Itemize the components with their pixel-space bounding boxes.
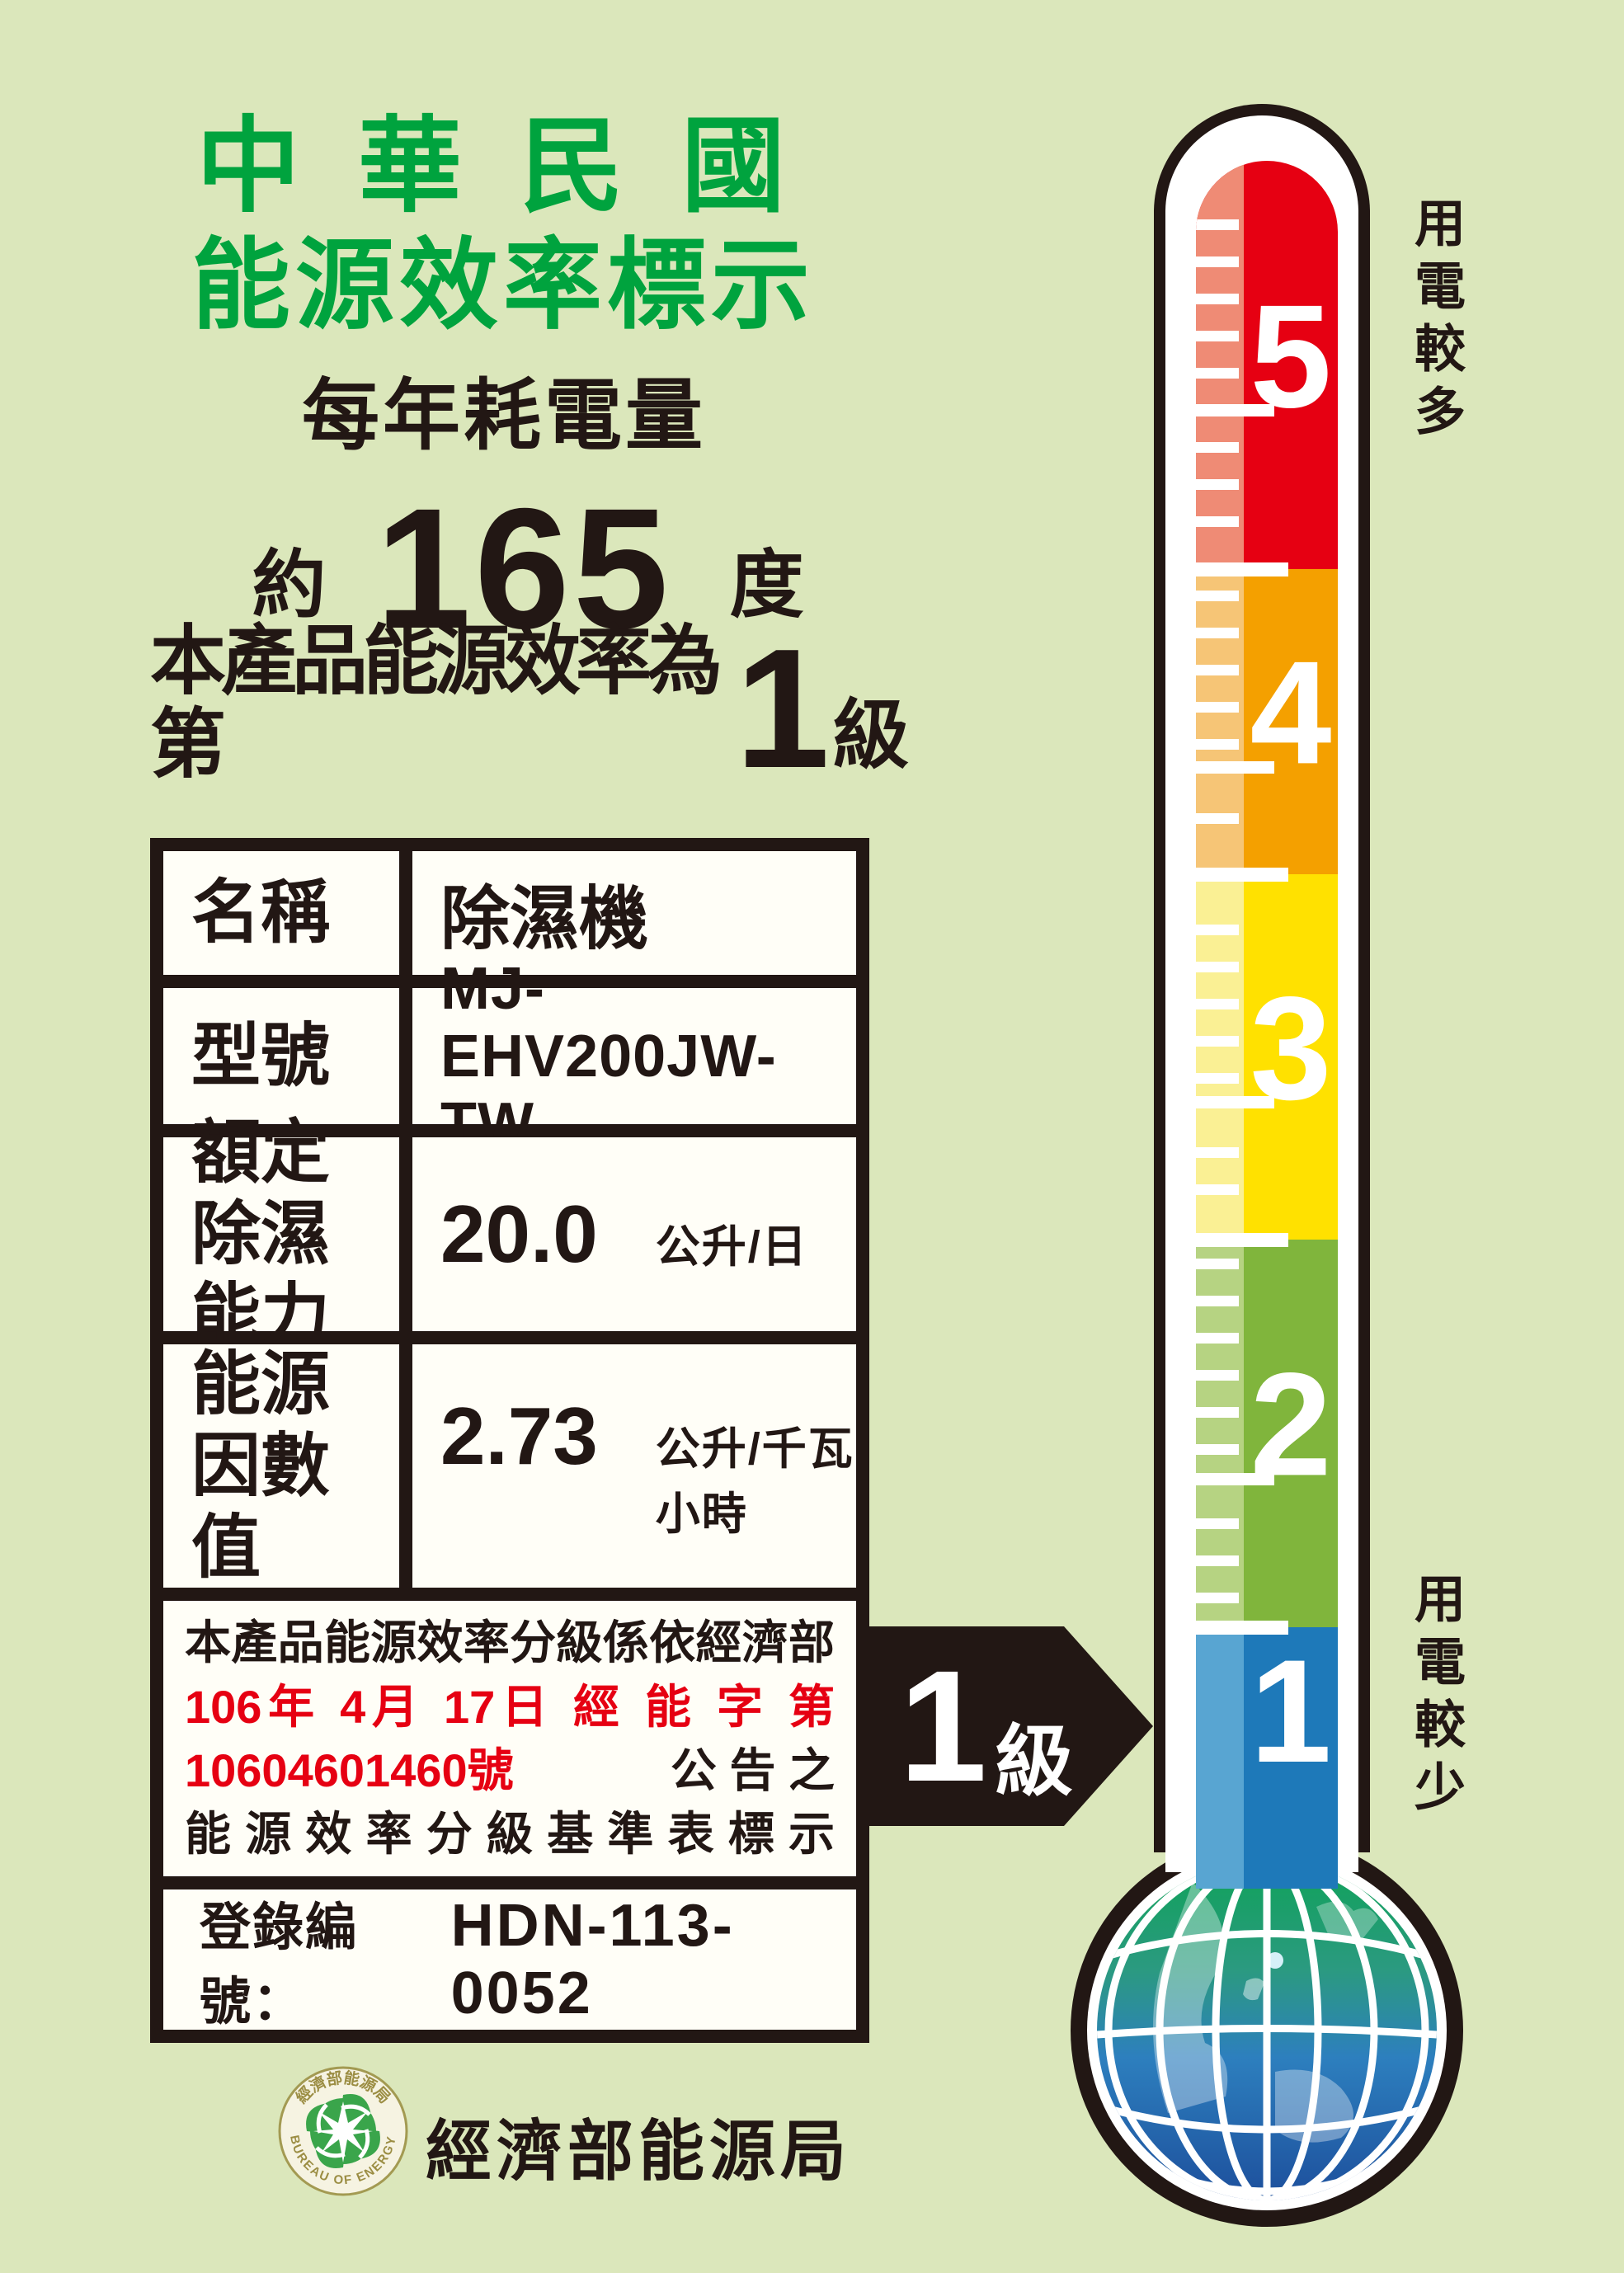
scale-tick (1196, 1473, 1274, 1485)
scale-tick (1196, 1233, 1288, 1247)
name-label-cell: 名稱 (163, 851, 399, 975)
notice-cell: 本產品能源效率分級係依經濟部 106年 4月 17日 經 能 字 第 10604… (163, 1601, 856, 1876)
scale-tick (1196, 999, 1239, 1009)
notice-line4: 能源效率分級基準表標示 (185, 1802, 835, 1866)
scale-tick (1196, 665, 1239, 675)
grade-sentence-prefix: 本產品能源效率為第 (150, 620, 732, 787)
grade-sentence: 本產品能源效率為第 1 級 (150, 620, 909, 787)
bureau-badge: 經濟部能源局 BUREAU OF ENERGY (277, 2065, 409, 2197)
grade-arrow-value: 1 (899, 1647, 987, 1805)
factor-label-line1: 能源 (191, 1344, 371, 1425)
model-value: MJ-EHV200JW-TW (440, 955, 856, 1158)
scale-tick (1196, 925, 1239, 935)
scale-tick (1196, 442, 1239, 453)
capacity-value: 20.0 (440, 1188, 598, 1281)
scale-label-less: 用電較少 (1397, 1572, 1471, 1823)
scale-tick (1196, 1370, 1239, 1381)
scale-tick (1196, 1184, 1239, 1195)
scale-tick (1196, 1518, 1239, 1529)
registration-number: HDN-113-0052 (451, 1892, 856, 2027)
factor-value-cell: 2.73 公升/千瓦小時 (412, 1344, 856, 1588)
scale-tick (1196, 1096, 1274, 1108)
factor-label-cell: 能源 因數值 (163, 1344, 399, 1588)
factor-unit: 公升/千瓦小時 (656, 1412, 856, 1542)
scale-tick (1196, 516, 1239, 527)
thermometer-scale: 54321 (1196, 161, 1338, 1889)
scale-tick (1196, 962, 1239, 972)
notice-line3-red: 10604601460號 (185, 1739, 514, 1802)
grade-arrow: 1 級 (856, 1626, 1153, 1826)
scale-tick (1196, 1555, 1239, 1566)
capacity-label-line1: 額定 (191, 1112, 371, 1193)
notice-line1: 本產品能源效率分級係依經濟部 (185, 1611, 835, 1674)
grade-number-1: 1 (1244, 1638, 1338, 1785)
scale-tick (1196, 331, 1239, 341)
scale-tick (1196, 761, 1274, 774)
notice-line2: 106年 4月 17日 經 能 字 第 (185, 1675, 835, 1739)
grade-value: 1 (735, 631, 830, 788)
scale-tick (1196, 1593, 1239, 1603)
spec-table: 名稱 除濕機 型號 MJ-EHV200JW-TW 額定 除濕能力 20.0 公升… (150, 838, 869, 2043)
scale-tick (1196, 368, 1239, 379)
scale-tick (1196, 1333, 1239, 1344)
scale-tick (1196, 1407, 1239, 1418)
scale-tick (1196, 1621, 1288, 1635)
scale-tick (1196, 479, 1239, 490)
notice-line3-black: 公 告 之 (671, 1739, 835, 1802)
notice-line3: 10604601460號 公 告 之 (185, 1739, 835, 1802)
capacity-value-cell: 20.0 公升/日 (412, 1137, 856, 1331)
scale-tick (1196, 1296, 1239, 1306)
scale-tick (1196, 591, 1239, 601)
scale-tick (1196, 1147, 1239, 1158)
registration-label: 登錄編號： (200, 1885, 451, 2034)
factor-value: 2.73 (440, 1390, 598, 1483)
bureau-name: 經濟部能源局 (426, 2098, 851, 2194)
annual-consumption-heading: 每年耗電量 (302, 353, 706, 465)
grade-section-highlight (1196, 1627, 1244, 1889)
capacity-label-cell: 額定 除濕能力 (163, 1137, 399, 1331)
scale-tick (1196, 1073, 1239, 1084)
grade-unit: 級 (833, 674, 909, 784)
capacity-unit: 公升/日 (656, 1210, 808, 1275)
scale-tick (1196, 628, 1239, 638)
scale-tick (1196, 868, 1288, 882)
scale-tick (1196, 813, 1239, 824)
scale-label-more: 用電較多 (1397, 196, 1471, 447)
name-label: 名稱 (191, 872, 371, 953)
factor-label-line2: 因數值 (191, 1425, 371, 1588)
grade-section-4: 4 (1196, 569, 1338, 874)
registration-cell: 登錄編號： HDN-113-0052 (163, 1889, 856, 2030)
scale-tick (1196, 702, 1239, 713)
energy-label: 中華民國 能源效率標示 每年耗電量 約 165 度 本產品能源效率為第 1 級 … (0, 0, 1624, 2273)
scale-tick (1196, 1444, 1239, 1455)
capacity-label-line2: 除濕能力 (191, 1193, 371, 1357)
grade-section-highlight (1196, 569, 1244, 874)
name-value: 除濕機 (440, 864, 856, 963)
scale-tick (1196, 256, 1239, 267)
grade-arrow-unit: 級 (996, 1699, 1073, 1811)
page-title-line2: 能源效率標示 (191, 205, 815, 348)
model-label: 型號 (191, 1015, 371, 1097)
scale-tick (1196, 562, 1288, 576)
scale-tick (1196, 739, 1239, 750)
globe-bulb (1069, 1833, 1465, 2228)
scale-tick (1196, 404, 1274, 416)
scale-tick (1196, 1259, 1239, 1269)
scale-tick (1196, 1036, 1239, 1047)
model-label-cell: 型號 (163, 988, 399, 1124)
scale-tick (1196, 219, 1239, 230)
approx-prefix: 約 (252, 525, 326, 632)
scale-tick (1196, 294, 1239, 304)
grade-section-1: 1 (1196, 1627, 1338, 1889)
model-value-cell: MJ-EHV200JW-TW (412, 988, 856, 1124)
